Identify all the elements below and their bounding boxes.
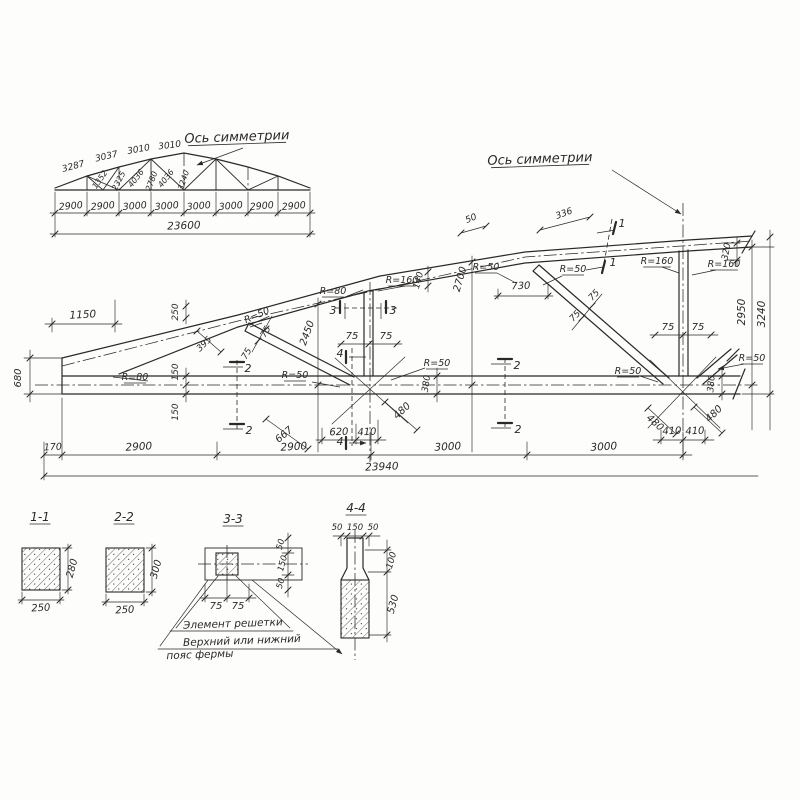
annotation-radius: R=50 <box>739 353 766 364</box>
annotation-dim: 75 <box>568 309 583 324</box>
annotation-panel-dim: 3000 <box>122 200 147 213</box>
annotation-dim: 50 <box>332 523 343 533</box>
svg-text:R=50: R=50 <box>615 366 642 377</box>
svg-text:R=160: R=160 <box>708 259 741 270</box>
svg-text:50: 50 <box>275 577 287 590</box>
annotation-dim: 410 <box>357 427 376 439</box>
svg-text:4-4: 4-4 <box>346 501 366 515</box>
svg-text:R=160: R=160 <box>386 275 419 286</box>
annotation-radius: R=50 <box>282 370 309 381</box>
svg-text:75: 75 <box>568 309 583 324</box>
svg-text:1352: 1352 <box>90 169 109 191</box>
svg-text:4036: 4036 <box>126 168 146 190</box>
svg-text:75: 75 <box>380 331 393 342</box>
svg-text:75: 75 <box>692 322 705 333</box>
annotation-dim: 380 <box>421 374 433 393</box>
annotation-dim: 3000 <box>590 440 618 453</box>
annotation-dim: 75 <box>259 324 274 339</box>
annotation-panel-dim: 2900 <box>281 200 306 213</box>
annotation-radius: R=80 <box>320 286 347 297</box>
annotation-web-dim: 1352 <box>90 169 109 191</box>
svg-text:280: 280 <box>65 558 81 579</box>
annotation-note: пояс фермы <box>166 648 233 662</box>
svg-text:R=80: R=80 <box>320 286 347 297</box>
annotation-dim: 75 <box>380 331 393 342</box>
svg-text:3000: 3000 <box>122 200 147 213</box>
svg-text:150: 150 <box>171 363 181 380</box>
svg-text:R=160: R=160 <box>641 256 674 267</box>
svg-text:2900: 2900 <box>249 200 274 213</box>
annotation-dim: 75 <box>587 288 602 303</box>
svg-text:250: 250 <box>31 603 51 615</box>
svg-text:3287: 3287 <box>61 159 86 175</box>
svg-text:1-1: 1-1 <box>30 510 50 524</box>
svg-text:2450: 2450 <box>298 319 317 347</box>
svg-text:2900: 2900 <box>281 200 306 213</box>
svg-text:пояс фермы: пояс фермы <box>166 648 233 662</box>
svg-text:R=80: R=80 <box>122 372 149 383</box>
svg-text:2700: 2700 <box>452 266 470 293</box>
annotation-web-dim: 4036 <box>126 168 146 190</box>
annotation-dim: 250 <box>115 605 135 617</box>
svg-text:3000: 3000 <box>186 200 211 213</box>
svg-text:3037: 3037 <box>94 150 119 165</box>
annotation-dim: 410 <box>662 426 681 438</box>
vertical-members <box>364 250 688 376</box>
annotation-dim: 680 <box>13 368 24 387</box>
annotation-radius: R=50 <box>424 358 451 369</box>
svg-text:250: 250 <box>115 605 135 617</box>
blueprint-canvas: Ось симметрии328730373010301013522325403… <box>0 0 800 800</box>
annotation-section-mark: 2 <box>514 359 521 372</box>
svg-text:170: 170 <box>44 442 63 454</box>
svg-text:150: 150 <box>171 403 181 420</box>
svg-text:23940: 23940 <box>365 460 399 473</box>
svg-text:23600: 23600 <box>167 219 201 232</box>
svg-text:380: 380 <box>706 375 717 393</box>
svg-text:2: 2 <box>246 424 253 437</box>
annotation-section-mark: 1 <box>619 217 626 230</box>
svg-text:R=50: R=50 <box>424 358 451 369</box>
annotation-radius: R=160 <box>641 256 674 267</box>
annotation-section-mark: 4 <box>337 435 344 448</box>
svg-text:R=50: R=50 <box>473 262 500 273</box>
annotation-dim: 1150 <box>69 308 97 321</box>
svg-text:2-2: 2-2 <box>114 510 134 524</box>
svg-text:150: 150 <box>347 523 363 533</box>
annotation-dim: 170 <box>44 442 63 454</box>
annotation-dim: 75 <box>692 322 705 333</box>
svg-text:R=50: R=50 <box>739 353 766 364</box>
svg-text:Элемент решетки: Элемент решетки <box>182 616 283 632</box>
annotation-total-dim: 23600 <box>167 219 201 232</box>
annotation-section-title: 2-2 <box>114 510 135 524</box>
svg-text:R=50: R=50 <box>560 264 587 275</box>
annotation-chord-dim: 3010 <box>158 140 182 153</box>
svg-text:336: 336 <box>555 206 575 221</box>
annotation-axis-label: Ось симметрии <box>487 150 593 169</box>
annotation-dim: 336 <box>555 206 575 221</box>
annotation-dim: 2900 <box>125 440 153 453</box>
annotation-panel-dim: 3000 <box>186 200 211 213</box>
annotation-dim: 75 <box>346 331 359 342</box>
annotation-dim: 300 <box>149 559 165 580</box>
svg-text:3010: 3010 <box>158 140 182 153</box>
svg-text:4: 4 <box>337 435 344 448</box>
annotation-web-dim: 3240 <box>176 169 191 191</box>
svg-text:2900: 2900 <box>125 440 153 453</box>
annotation-section-mark: 3 <box>390 304 397 317</box>
svg-text:2900: 2900 <box>90 200 115 213</box>
annotation-radius: R=50 <box>560 264 587 275</box>
annotation-note: Элемент решетки <box>182 616 283 632</box>
svg-text:R=50: R=50 <box>243 305 272 326</box>
svg-text:410: 410 <box>357 427 376 439</box>
annotation-dim: 2950 <box>736 298 748 325</box>
annotation-dim: 50 <box>368 523 379 533</box>
svg-text:250: 250 <box>171 303 181 320</box>
annotation-radius: R=50 <box>243 305 272 326</box>
annotation-total-dim: 23940 <box>365 460 399 473</box>
svg-text:2950: 2950 <box>736 298 748 325</box>
annotation-section-mark: 2 <box>246 424 253 437</box>
section-4-4 <box>333 530 391 660</box>
svg-text:480: 480 <box>392 401 413 422</box>
svg-text:2: 2 <box>514 359 521 372</box>
annotation-dim: 3000 <box>434 440 462 453</box>
svg-text:3: 3 <box>330 304 337 317</box>
svg-text:75: 75 <box>240 346 255 361</box>
svg-text:50: 50 <box>332 523 343 533</box>
svg-text:380: 380 <box>421 374 433 393</box>
annotation-radius: R=80 <box>122 372 149 383</box>
annotation-web-dim: 2325 <box>110 170 127 192</box>
annotation-section-title: 1-1 <box>30 510 51 524</box>
annotation-dim: 150 <box>171 363 181 380</box>
annotation-dim: 75 <box>210 601 223 612</box>
svg-text:3000: 3000 <box>154 200 179 213</box>
annotation-dim: 50 <box>275 577 287 590</box>
svg-text:75: 75 <box>259 324 274 339</box>
annotation-dim: 280 <box>65 558 81 579</box>
svg-text:Верхний или нижний: Верхний или нижний <box>183 633 301 649</box>
svg-text:2: 2 <box>245 362 252 375</box>
annotation-section-title: 3-3 <box>223 512 244 526</box>
annotation-panel-dim: 3000 <box>218 200 243 213</box>
svg-text:3000: 3000 <box>590 440 618 453</box>
annotation-dim: 480 <box>392 401 413 422</box>
annotation-dim: 150 <box>171 403 181 420</box>
svg-text:75: 75 <box>346 331 359 342</box>
annotation-dim: 480 <box>704 404 725 425</box>
annotation-section-mark: 2 <box>515 423 522 436</box>
annotation-radius: R=160 <box>708 259 741 270</box>
svg-text:3240: 3240 <box>176 169 191 191</box>
svg-text:75: 75 <box>232 601 245 612</box>
annotation-axis-label: Ось симметрии <box>184 128 290 147</box>
section-2-2 <box>102 544 156 606</box>
svg-text:3000: 3000 <box>434 440 462 453</box>
annotation-section-title: 4-4 <box>346 501 367 515</box>
annotation-dim: 150 <box>347 523 363 533</box>
svg-text:300: 300 <box>149 559 165 580</box>
annotation-dim: 2700 <box>452 266 470 293</box>
annotation-dim: 530 <box>386 594 402 615</box>
svg-text:3010: 3010 <box>127 143 152 157</box>
svg-text:410: 410 <box>685 426 704 438</box>
svg-text:50: 50 <box>368 523 379 533</box>
svg-text:2: 2 <box>515 423 522 436</box>
svg-text:3-3: 3-3 <box>223 512 243 526</box>
svg-text:480: 480 <box>704 404 725 425</box>
annotation-chord-dim: 3010 <box>127 143 152 157</box>
annotation-chord-dim: 3287 <box>61 159 86 175</box>
annotation-dim: 730 <box>511 281 530 293</box>
svg-text:530: 530 <box>386 594 402 615</box>
annotation-dim: 75 <box>232 601 245 612</box>
svg-text:4036: 4036 <box>156 168 176 190</box>
annotation-dim: 250 <box>31 603 51 615</box>
svg-text:50: 50 <box>464 212 479 226</box>
svg-text:1: 1 <box>619 217 626 230</box>
annotation-radius: R=50 <box>615 366 642 377</box>
annotation-web-dim: 4036 <box>156 168 176 190</box>
svg-text:3: 3 <box>390 304 397 317</box>
annotation-panel-dim: 2900 <box>58 200 83 213</box>
svg-text:1: 1 <box>610 256 617 269</box>
svg-text:680: 680 <box>13 368 24 387</box>
annotation-panel-dim: 2900 <box>249 200 274 213</box>
svg-text:3240: 3240 <box>756 300 768 327</box>
section-1-1 <box>18 544 72 604</box>
annotation-radius: R=50 <box>473 262 500 273</box>
svg-text:4: 4 <box>337 347 344 360</box>
svg-text:2325: 2325 <box>110 170 127 192</box>
svg-text:75: 75 <box>210 601 223 612</box>
annotation-section-mark: 3 <box>330 304 337 317</box>
svg-text:75: 75 <box>587 288 602 303</box>
annotation-panel-dim: 3000 <box>154 200 179 213</box>
annotation-dim: 75 <box>662 322 675 333</box>
svg-text:R=50: R=50 <box>282 370 309 381</box>
annotation-dim: 50 <box>464 212 479 226</box>
annotation-panel-dim: 2900 <box>90 200 115 213</box>
annotation-dim: 2450 <box>298 319 317 347</box>
svg-text:75: 75 <box>662 322 675 333</box>
svg-text:3000: 3000 <box>218 200 243 213</box>
annotation-section-mark: 4 <box>337 347 344 360</box>
svg-text:730: 730 <box>511 281 530 293</box>
annotation-note: Верхний или нижний <box>183 633 301 649</box>
annotation-dim: 3240 <box>756 300 768 327</box>
svg-text:1150: 1150 <box>69 308 97 321</box>
annotation-dim: 250 <box>171 303 181 320</box>
annotation-dim: 75 <box>240 346 255 361</box>
annotation-dim: 410 <box>685 426 704 438</box>
annotation-section-mark: 1 <box>610 256 617 269</box>
truss-drawing: Ось симметрии328730373010301013522325403… <box>0 0 800 800</box>
annotation-section-mark: 2 <box>245 362 252 375</box>
annotation-radius: R=160 <box>386 275 419 286</box>
annotation-dim: 380 <box>706 375 717 393</box>
svg-text:2900: 2900 <box>58 200 83 213</box>
annotation-chord-dim: 3037 <box>94 150 119 165</box>
svg-text:410: 410 <box>662 426 681 438</box>
